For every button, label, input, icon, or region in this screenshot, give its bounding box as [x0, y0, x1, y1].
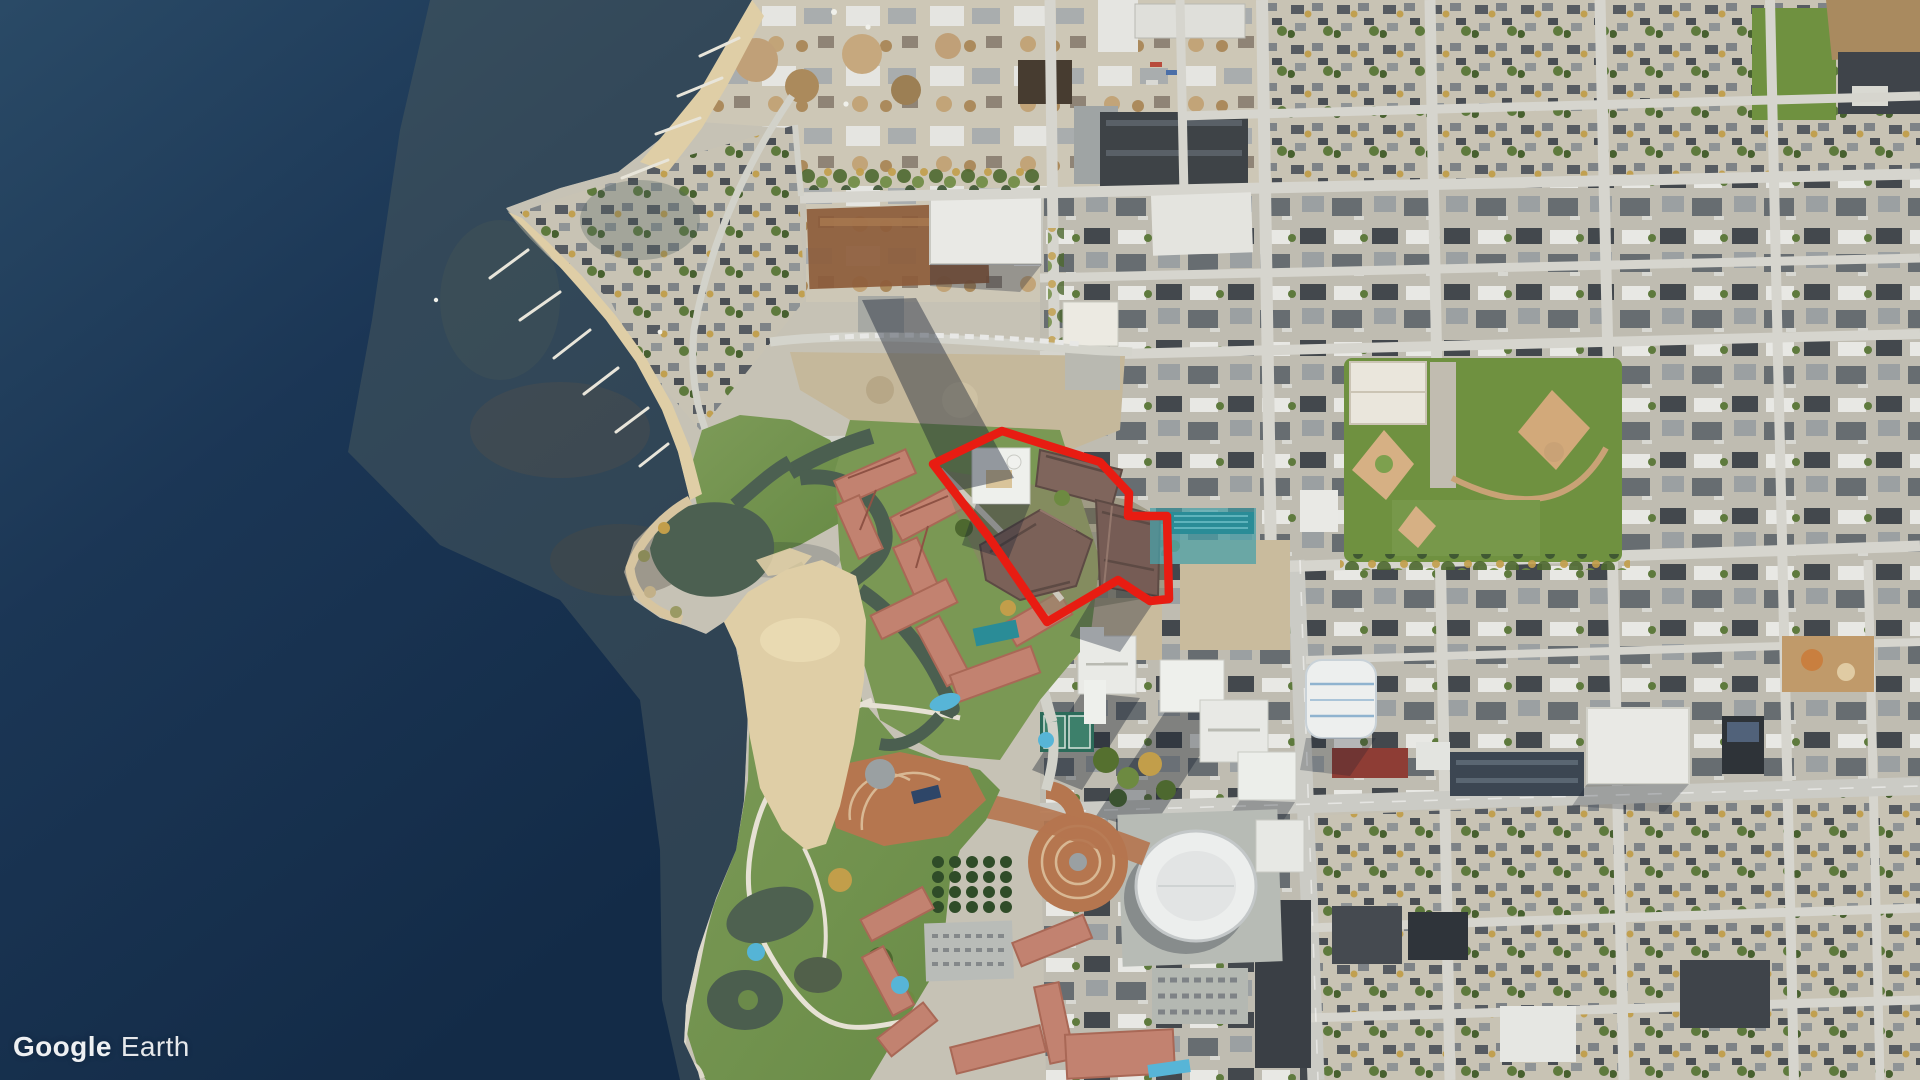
satellite-map[interactable] [0, 0, 1920, 1080]
ballpark [1340, 358, 1630, 570]
google-earth-watermark: Google Earth [13, 1031, 190, 1063]
google-earth-viewport[interactable]: Google Earth [0, 0, 1920, 1080]
google-logo-text: Google [13, 1031, 112, 1063]
earth-logo-text: Earth [121, 1031, 190, 1063]
